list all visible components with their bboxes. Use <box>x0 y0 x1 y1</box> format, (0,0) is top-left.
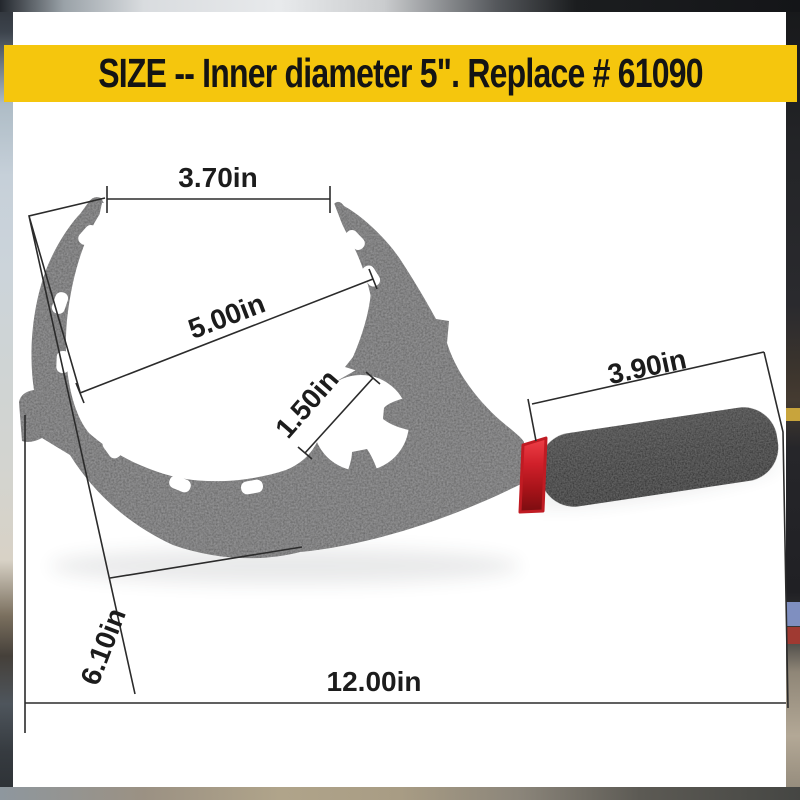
dimension-handle-grip <box>528 352 788 708</box>
product-image: 3.70in 5.00in 1.50in 3.90in 6.10in 12.00… <box>0 0 800 800</box>
size-banner-text: SIZE -- Inner diameter 5". Replace # 610… <box>98 50 703 97</box>
label-jaw-opening: 3.70in <box>178 162 257 193</box>
label-body-height: 6.10in <box>74 604 131 689</box>
label-overall-length: 12.00in <box>327 666 422 697</box>
label-handle-grip: 3.90in <box>605 343 689 390</box>
size-banner: SIZE -- Inner diameter 5". Replace # 610… <box>4 45 797 102</box>
filter-wrench-diagram: 3.70in 5.00in 1.50in 3.90in 6.10in 12.00… <box>0 0 800 800</box>
handle-red-band <box>520 438 546 512</box>
